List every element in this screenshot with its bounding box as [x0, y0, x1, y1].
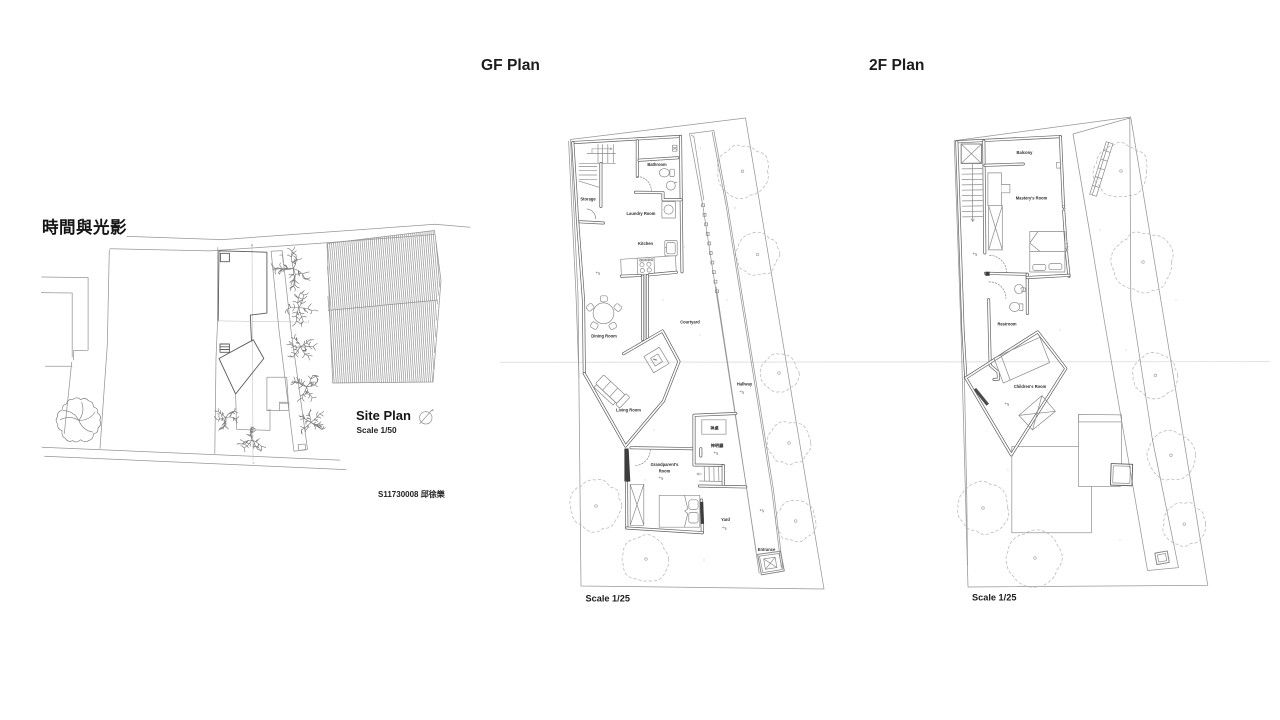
svg-text:Dining Room: Dining Room	[591, 334, 617, 339]
svg-text:Yard: Yard	[721, 517, 730, 522]
svg-text:Scale 1/25: Scale 1/25	[586, 594, 630, 604]
svg-text:GF Plan: GF Plan	[481, 57, 540, 74]
svg-text:Entrance: Entrance	[758, 547, 776, 552]
svg-text:Scale 1/25: Scale 1/25	[972, 593, 1016, 603]
svg-text:Kitchen: Kitchen	[638, 241, 654, 246]
svg-text:x: x	[253, 460, 255, 465]
svg-text:S11730008 邱徐樂: S11730008 邱徐樂	[378, 489, 446, 499]
svg-text:2F Plan: 2F Plan	[869, 57, 924, 74]
svg-text:Balcony: Balcony	[1017, 150, 1034, 155]
svg-text:Hallway: Hallway	[737, 382, 753, 387]
svg-text:Grandparent's: Grandparent's	[651, 462, 680, 467]
svg-text:神桌: 神桌	[710, 425, 719, 432]
svg-text:神明廳: 神明廳	[711, 442, 724, 449]
svg-text:Courtyard: Courtyard	[680, 320, 700, 325]
svg-text:Room: Room	[659, 469, 671, 474]
svg-text:Storage: Storage	[580, 197, 596, 202]
svg-text:Scale 1/50: Scale 1/50	[357, 425, 398, 435]
svg-text:Children's Room: Children's Room	[1014, 384, 1047, 389]
svg-text:Site Plan: Site Plan	[356, 408, 411, 423]
svg-text:Restroom: Restroom	[997, 322, 1016, 327]
svg-text:Mastery's Room: Mastery's Room	[1016, 196, 1048, 201]
svg-text:Laundry Room: Laundry Room	[627, 211, 656, 216]
svg-text:Living Room: Living Room	[616, 408, 641, 413]
svg-text:Bathroom: Bathroom	[647, 162, 667, 167]
svg-text:時間與光影: 時間與光影	[42, 217, 127, 237]
